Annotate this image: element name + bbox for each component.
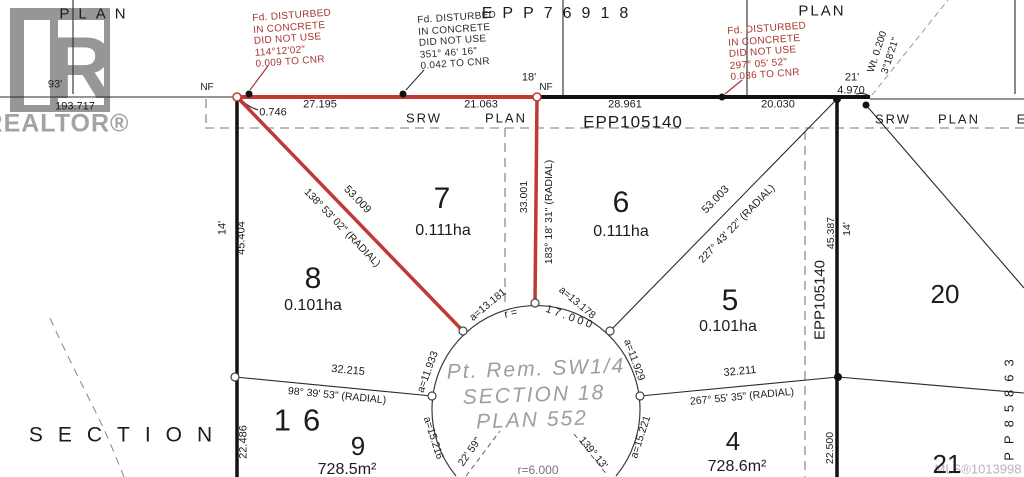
survey-plan-canvas: R <box>0 0 1024 477</box>
section-dashed-curve <box>50 318 124 477</box>
dim-45-387: 45.387 <box>826 217 837 249</box>
srw-left-plan: PLAN <box>485 112 527 125</box>
lot9-number: 9 <box>351 433 365 459</box>
lot6-number: 6 <box>613 188 630 218</box>
srw-right-plan: PLAN <box>938 113 980 126</box>
plan-number-epp105140-vertical: EPP105140 <box>813 260 828 340</box>
monument-dots <box>246 91 870 382</box>
lot16-number: 16 <box>274 405 332 436</box>
dim-20-030: 20.030 <box>761 100 795 111</box>
lot9-area: 728.5m² <box>318 462 377 477</box>
lot20-number: 20 <box>931 281 960 307</box>
plan-number-pp85863: PP85863 <box>1003 351 1016 461</box>
note2-leader <box>406 70 424 90</box>
dim-93ft: 93' <box>48 80 62 91</box>
lot4-number: 4 <box>726 428 740 454</box>
lot4-area: 728.6m² <box>708 459 767 475</box>
srw-right-e: E <box>1017 113 1024 126</box>
lot7-area: 0.111ha <box>415 223 470 239</box>
dim-0-746: 0.746 <box>259 108 287 119</box>
lot8-area: 0.101ha <box>284 298 342 314</box>
dim-33-001: 33.001 <box>519 181 530 213</box>
lot8-number: 8 <box>305 264 322 294</box>
nf-mid: NF <box>539 83 552 93</box>
note-disturbed-2: Fd. DISTURBED IN CONCRETE DID NOT USE 35… <box>417 9 500 72</box>
realtor-watermark: REALTOR® <box>0 112 129 137</box>
remainder-parcel-line3: PLAN 552 <box>476 408 588 433</box>
nf-left: NF <box>200 83 213 93</box>
lot5-area: 0.101ha <box>699 319 757 335</box>
plan-number-epp105140: EPP105140 <box>583 114 683 131</box>
lot7-number: 7 <box>434 184 451 214</box>
dim-22-486: 22.486 <box>239 425 250 459</box>
note-disturbed-3: Fd. DISTURBED IN CONCRETE DID NOT USE 29… <box>727 20 810 83</box>
plan-title-top-right: PLAN <box>798 4 845 19</box>
section-label: SECTION <box>29 425 227 446</box>
dim-14ft-right: 14' <box>842 222 853 236</box>
remainder-parcel-line2: SECTION 18 <box>462 382 605 408</box>
srw-left: SRW <box>406 112 442 125</box>
plan-number-epp76918: EPP76918 <box>482 6 639 22</box>
lot6-area: 0.111ha <box>593 224 648 240</box>
lot5-number: 5 <box>722 286 739 316</box>
radius-6-000: r=6.000 <box>517 464 558 476</box>
dim-193-717: 193.717 <box>55 102 95 113</box>
dim-14ft-left: 14' <box>218 221 229 235</box>
dim-45-404: 45.404 <box>237 221 248 255</box>
bearing-183-18-31: 183° 18' 31" (RADIAL) <box>544 160 555 264</box>
dim-27-195: 27.195 <box>303 100 337 111</box>
dim-21ft: 21' <box>845 73 859 84</box>
lot21-number: 21 <box>933 451 962 477</box>
dim-4-970: 4.970 <box>837 86 865 97</box>
note-disturbed-1: Fd. DISTURBED IN CONCRETE DID NOT USE 11… <box>252 7 335 70</box>
dim-22-500: 22.500 <box>825 432 836 464</box>
plan-title-top-left: PLAN <box>59 7 134 22</box>
dim-18ft: 18' <box>522 73 536 84</box>
dim-21-063: 21.063 <box>464 100 498 111</box>
srw-right: SRW <box>875 113 911 126</box>
dim-28-961: 28.961 <box>608 100 642 111</box>
